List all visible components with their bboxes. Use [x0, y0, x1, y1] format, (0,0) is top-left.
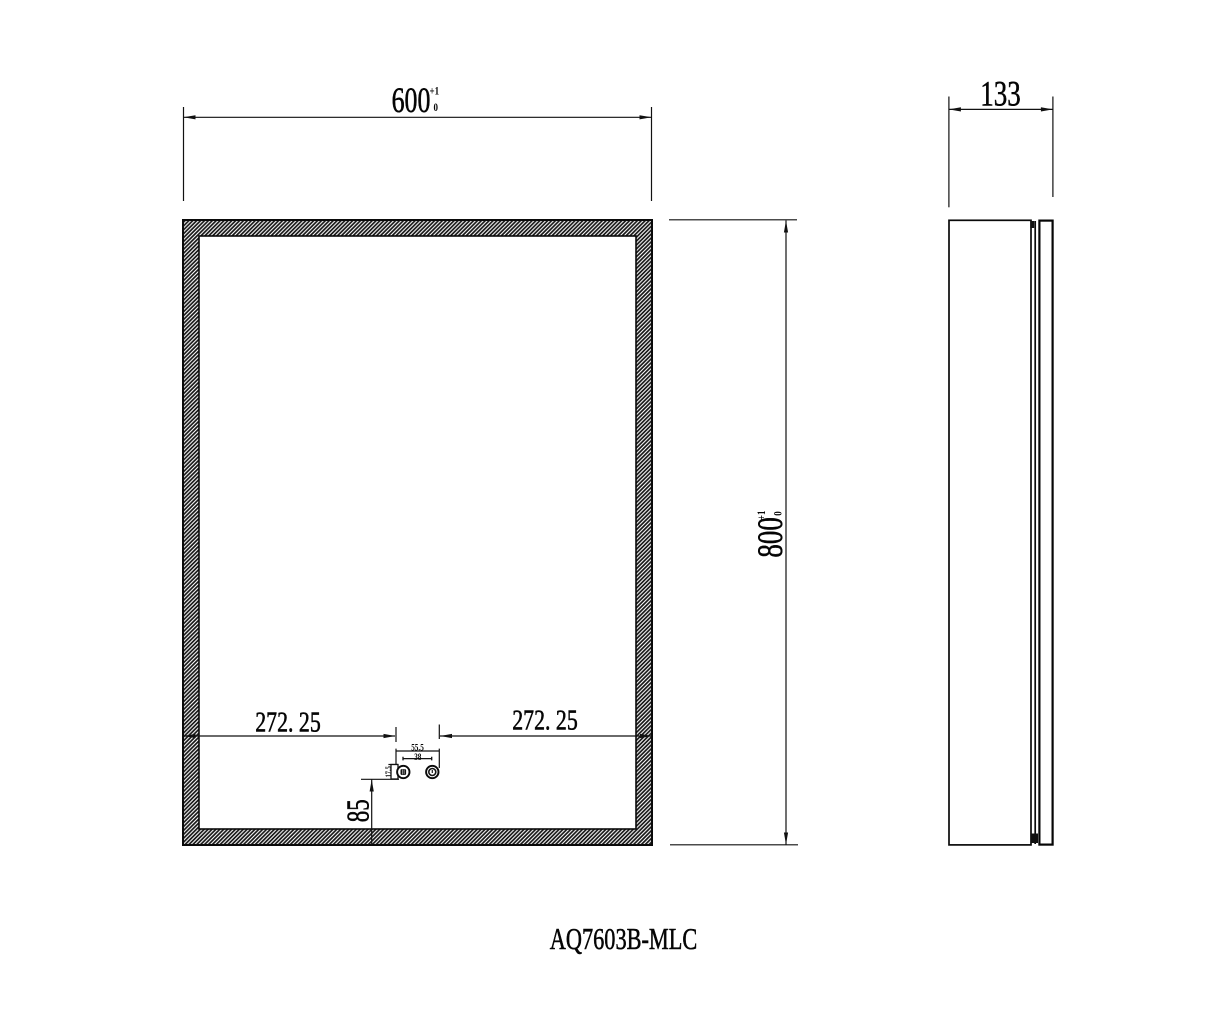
svg-text:133: 133: [980, 74, 1020, 114]
svg-text:85: 85: [341, 799, 377, 822]
svg-text:55.5: 55.5: [411, 743, 424, 753]
svg-text:+1: +1: [430, 86, 440, 98]
svg-text:272. 25: 272. 25: [512, 706, 577, 736]
svg-text:17.5: 17.5: [384, 766, 393, 778]
svg-text:+1: +1: [756, 511, 768, 521]
svg-text:38: 38: [414, 752, 421, 762]
svg-text:0: 0: [772, 511, 784, 515]
svg-text:800: 800: [750, 517, 790, 557]
svg-text:0: 0: [434, 102, 438, 114]
svg-text:600: 600: [392, 80, 431, 120]
svg-text:272. 25: 272. 25: [255, 708, 320, 738]
svg-text:AQ7603B-MLC: AQ7603B-MLC: [550, 921, 698, 955]
